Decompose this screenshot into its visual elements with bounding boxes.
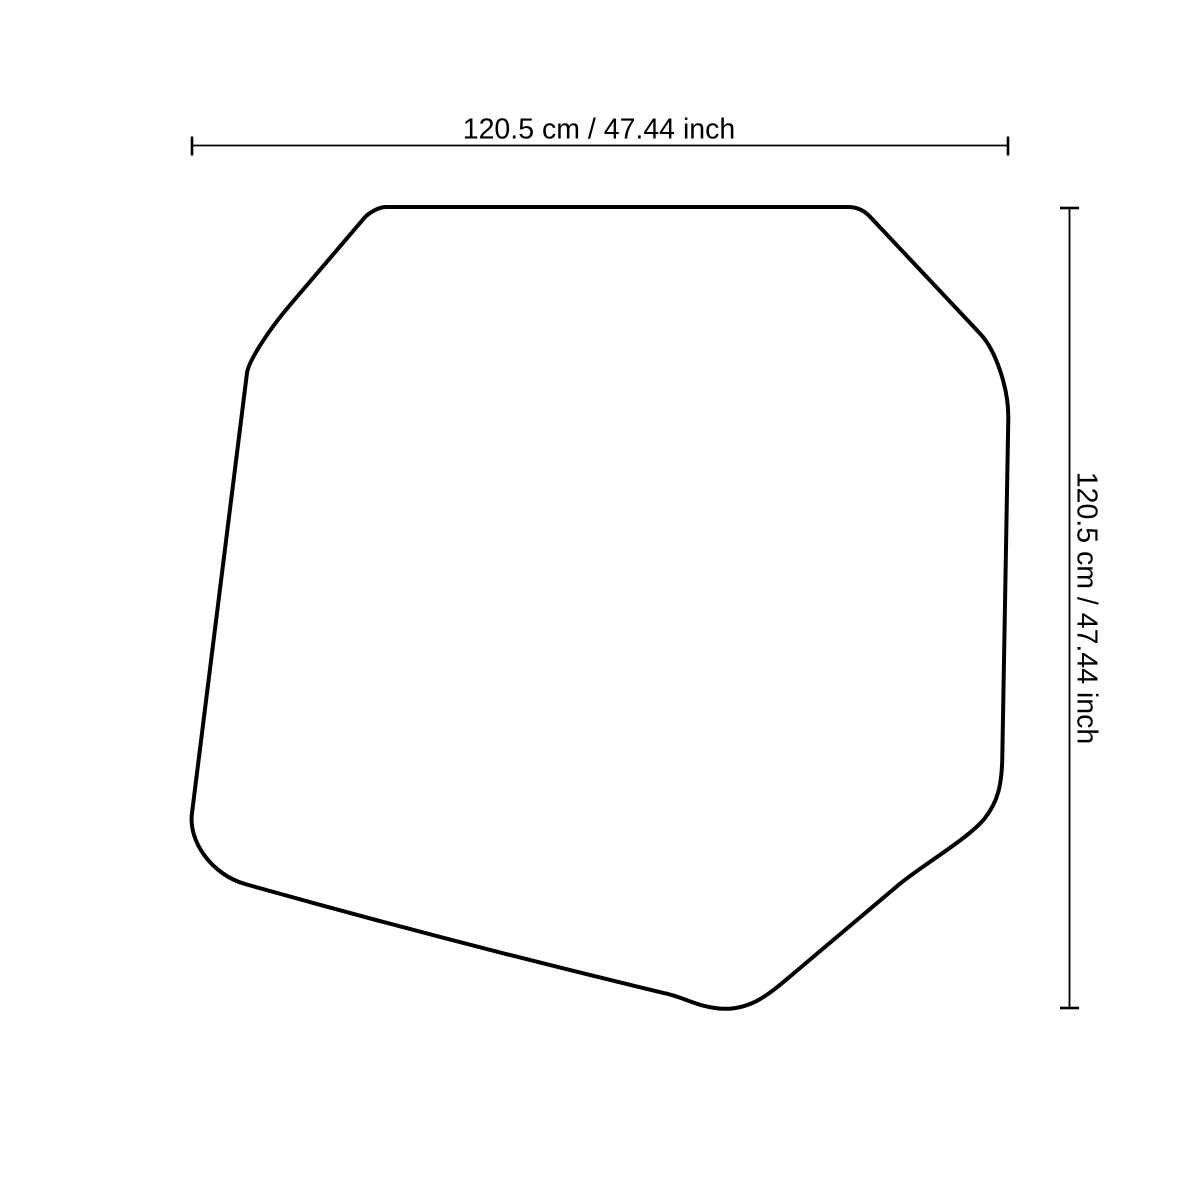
svg-text:120.5 cm / 47.44 inch: 120.5 cm / 47.44 inch [463, 114, 736, 146]
svg-text:120.5 cm / 47.44 inch: 120.5 cm / 47.44 inch [1071, 472, 1103, 745]
